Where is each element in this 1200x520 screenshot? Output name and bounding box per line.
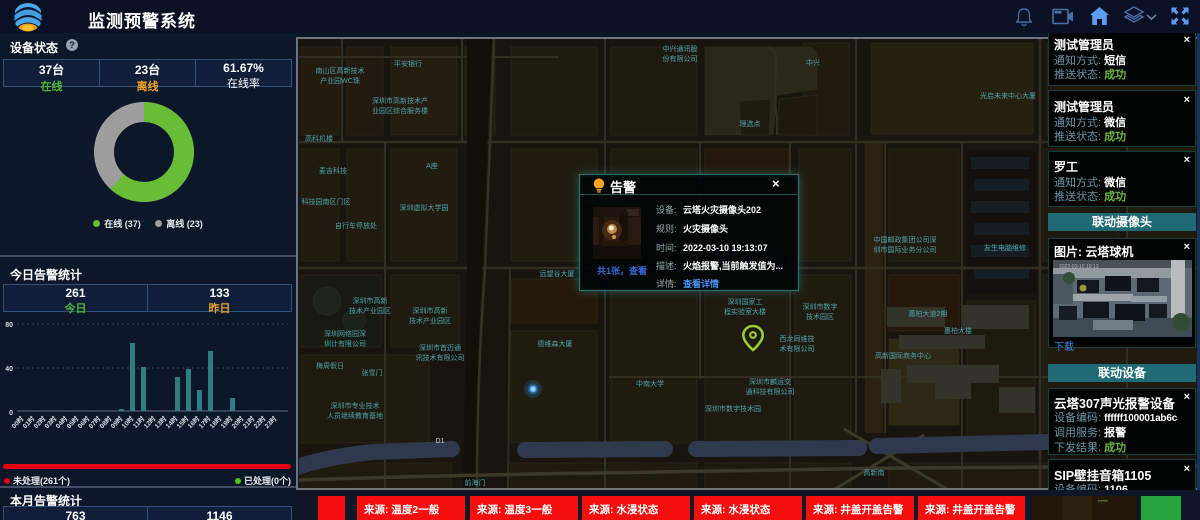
svg-text:深圳市数字技术园: 深圳市数字技术园 <box>705 404 761 413</box>
svg-text:深圳市数字: 深圳市数字 <box>803 302 838 311</box>
svg-text:深圳市专业技术: 深圳市专业技术 <box>331 401 380 410</box>
svg-text:张雪门: 张雪门 <box>362 368 383 377</box>
svg-text:西龙同维技: 西龙同维技 <box>780 334 815 343</box>
svg-text:业园区综合服务楼: 业园区综合服务楼 <box>372 106 428 115</box>
svg-text:德维森大厦: 德维森大厦 <box>538 339 573 348</box>
svg-text:远望谷大厦: 远望谷大厦 <box>540 269 575 278</box>
svg-text:80: 80 <box>5 322 13 329</box>
svg-text:技术产业园区: 技术产业园区 <box>349 306 391 315</box>
svg-text:讯技术有限公司: 讯技术有限公司 <box>416 353 465 362</box>
svg-text:D1: D1 <box>436 438 445 445</box>
svg-text:深圳市高新: 深圳市高新 <box>353 296 388 305</box>
svg-text:通科技有限公司: 通科技有限公司 <box>746 387 795 396</box>
svg-text:中兴: 中兴 <box>806 58 820 67</box>
svg-text:份有限公司: 份有限公司 <box>663 54 698 63</box>
svg-text:自行车停放处: 自行车停放处 <box>335 221 377 230</box>
svg-text:惠柏大道2期: 惠柏大道2期 <box>909 309 948 318</box>
svg-text:0: 0 <box>9 410 13 417</box>
svg-text:中南大学: 中南大学 <box>636 379 664 388</box>
svg-text:深圳市高新技术产: 深圳市高新技术产 <box>372 96 428 105</box>
svg-text:深圳国家工: 深圳国家工 <box>728 297 763 306</box>
svg-text:40: 40 <box>5 366 13 373</box>
svg-text:技术园区: 技术园区 <box>806 312 834 321</box>
svg-text:程实验室大楼: 程实验室大楼 <box>724 307 766 316</box>
svg-text:友生电脑维修: 友生电脑维修 <box>984 243 1026 252</box>
svg-text:南山区高新技术: 南山区高新技术 <box>316 66 365 75</box>
svg-text:前海门: 前海门 <box>465 478 486 487</box>
svg-text:深圳市首迈通: 深圳市首迈通 <box>419 343 461 352</box>
svg-text:光启未来中心大厦: 光启未来中心大厦 <box>980 91 1036 100</box>
svg-text:麦吉科技: 麦吉科技 <box>319 166 347 175</box>
svg-text:高新国际商务中心: 高新国际商务中心 <box>875 351 931 360</box>
svg-text:深圳虚拟大学园: 深圳虚拟大学园 <box>400 203 449 212</box>
svg-text:深圳网络园深: 深圳网络园深 <box>324 329 366 338</box>
svg-text:圳计有限公司: 圳计有限公司 <box>324 339 366 348</box>
svg-text:技术产业园区: 技术产业园区 <box>409 316 451 325</box>
svg-text:产业园WC珠: 产业园WC珠 <box>320 76 360 85</box>
svg-text:惠柏大楼: 惠柏大楼 <box>944 326 972 335</box>
svg-text:中兴通讯股: 中兴通讯股 <box>663 44 698 53</box>
svg-text:理选点: 理选点 <box>740 119 761 128</box>
svg-text:人员继续教育基地: 人员继续教育基地 <box>327 411 383 420</box>
svg-text:科技园南区门区: 科技园南区门区 <box>302 197 351 206</box>
svg-text:梅周假日: 梅周假日 <box>316 361 344 370</box>
svg-text:深圳市麟运交: 深圳市麟运交 <box>749 377 791 386</box>
svg-text:术有限公司: 术有限公司 <box>780 344 815 353</box>
svg-text:平安银行: 平安银行 <box>394 59 422 68</box>
svg-text:高科机楼: 高科机楼 <box>305 134 333 143</box>
svg-text:A座: A座 <box>426 161 438 170</box>
svg-text:高新南: 高新南 <box>864 468 885 477</box>
svg-text:圳市国际业务分公司: 圳市国际业务分公司 <box>874 245 937 254</box>
svg-text:深圳市高新: 深圳市高新 <box>413 306 448 315</box>
svg-text:中国邮政集团公司深: 中国邮政集团公司深 <box>874 235 937 244</box>
